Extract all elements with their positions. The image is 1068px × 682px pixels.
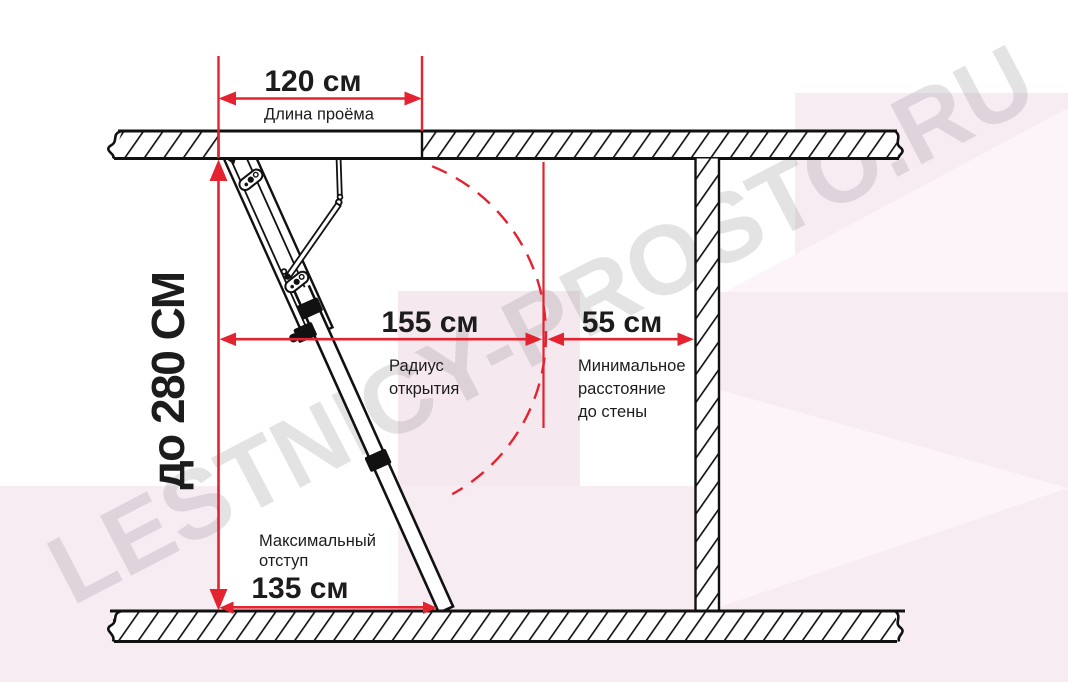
svg-text:Радиус: Радиус xyxy=(389,357,444,375)
svg-text:55 см: 55 см xyxy=(582,306,663,339)
svg-text:до стены: до стены xyxy=(578,403,647,421)
svg-text:расстояние: расстояние xyxy=(578,380,666,398)
svg-text:155 см: 155 см xyxy=(381,306,478,339)
svg-text:Минимальное: Минимальное xyxy=(578,357,686,375)
svg-text:открытия: открытия xyxy=(389,380,459,398)
svg-text:Длина проёма: Длина проёма xyxy=(264,106,375,124)
svg-text:до 280 СМ: до 280 СМ xyxy=(142,272,194,489)
svg-text:135 см: 135 см xyxy=(251,572,348,605)
svg-text:отступ: отступ xyxy=(259,552,308,570)
svg-text:Максимальный: Максимальный xyxy=(259,532,376,550)
svg-text:120 см: 120 см xyxy=(264,65,361,98)
